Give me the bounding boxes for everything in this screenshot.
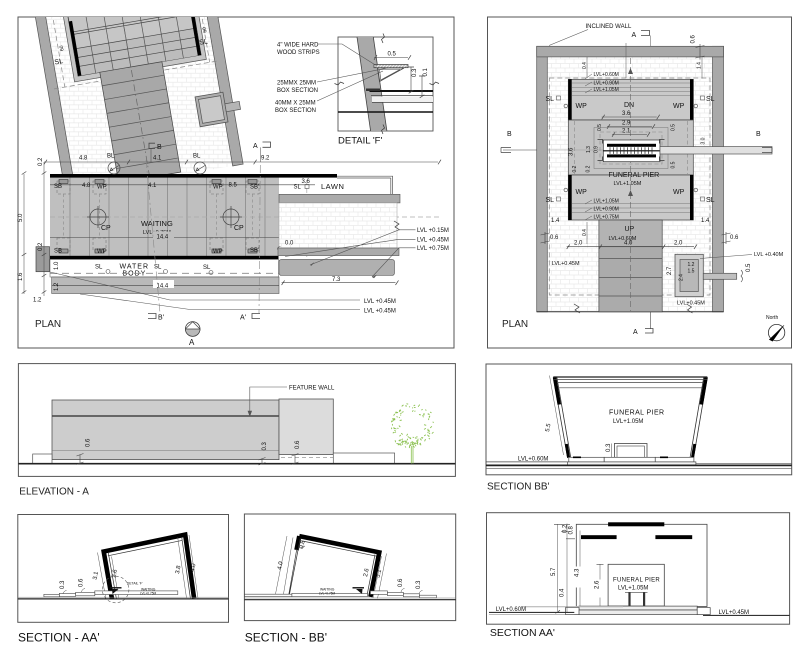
svg-text:LVL +0.75M: LVL +0.75M xyxy=(417,246,449,252)
svg-text:0.3: 0.3 xyxy=(262,441,268,450)
svg-text:LVL+0.75M: LVL+0.75M xyxy=(594,215,619,221)
svg-text:LVL+0.75M: LVL+0.75M xyxy=(140,591,156,595)
svg-text:SL: SL xyxy=(203,265,211,271)
svg-text:BL: BL xyxy=(107,154,115,160)
svg-text:LVL+0.60M: LVL+0.60M xyxy=(609,236,637,242)
svg-text:2.0: 2.0 xyxy=(674,241,683,247)
svg-text:WP: WP xyxy=(673,189,685,196)
svg-text:LVL+1.05M: LVL+1.05M xyxy=(594,87,619,93)
svg-text:0.2: 0.2 xyxy=(38,242,44,251)
svg-text:7.3: 7.3 xyxy=(332,277,341,283)
svg-text:DN: DN xyxy=(624,102,634,109)
svg-text:LVL+0.60M: LVL+0.60M xyxy=(496,607,526,613)
svg-text:0.5: 0.5 xyxy=(388,52,397,58)
svg-text:4.8: 4.8 xyxy=(79,156,88,162)
svg-text:0.2: 0.2 xyxy=(572,165,578,172)
svg-text:PLAN: PLAN xyxy=(35,319,61,330)
svg-text:8.5: 8.5 xyxy=(229,183,238,189)
svg-text:LVL +0.45M: LVL +0.45M xyxy=(417,238,449,244)
svg-text:SL: SL xyxy=(546,96,555,103)
svg-text:PLAN: PLAN xyxy=(502,319,528,330)
svg-text:SECTION - AA': SECTION - AA' xyxy=(18,631,100,645)
svg-text:3.6: 3.6 xyxy=(302,179,311,185)
svg-text:WP: WP xyxy=(97,249,107,255)
svg-text:0.5: 0.5 xyxy=(597,124,603,131)
svg-text:WATER: WATER xyxy=(120,264,150,271)
svg-text:FUNERAL PIER: FUNERAL PIER xyxy=(609,410,665,417)
svg-text:CP: CP xyxy=(101,225,111,232)
svg-text:0.3: 0.3 xyxy=(416,580,422,589)
svg-text:4.3: 4.3 xyxy=(575,568,581,577)
svg-text:LAWN: LAWN xyxy=(321,182,344,191)
svg-text:40MM X 25MM: 40MM X 25MM xyxy=(275,101,316,107)
svg-text:SECTION BB': SECTION BB' xyxy=(487,482,550,493)
svg-text:5.7: 5.7 xyxy=(551,567,557,576)
svg-text:SECTION AA': SECTION AA' xyxy=(490,627,555,639)
svg-text:1.4: 1.4 xyxy=(701,218,710,224)
svg-text:1.2: 1.2 xyxy=(688,262,695,268)
svg-text:3.6: 3.6 xyxy=(569,147,575,156)
svg-text:INCLINED WALL: INCLINED WALL xyxy=(586,24,632,30)
svg-text:1.0: 1.0 xyxy=(54,261,60,270)
svg-text:CP: CP xyxy=(234,225,244,232)
svg-text:0.3: 0.3 xyxy=(60,580,66,589)
svg-text:0.0: 0.0 xyxy=(285,241,294,247)
svg-text:1.2: 1.2 xyxy=(33,298,42,304)
svg-text:FUNERAL PIER: FUNERAL PIER xyxy=(613,578,660,584)
svg-text:A: A xyxy=(633,329,638,336)
svg-text:0.6: 0.6 xyxy=(295,440,301,449)
svg-text:WP: WP xyxy=(213,249,223,255)
svg-text:SL: SL xyxy=(154,265,162,271)
svg-text:SL: SL xyxy=(706,197,715,204)
svg-text:SL: SL xyxy=(54,58,64,66)
svg-text:LVL+1.05M: LVL+1.05M xyxy=(613,419,643,425)
svg-text:WP: WP xyxy=(673,103,685,110)
svg-text:SL: SL xyxy=(706,96,715,103)
svg-text:A: A xyxy=(632,32,637,39)
svg-text:SB: SB xyxy=(54,249,62,255)
svg-text:WAITING: WAITING xyxy=(141,219,173,228)
svg-text:2.4: 2.4 xyxy=(679,274,685,281)
svg-text:4.1: 4.1 xyxy=(148,183,157,189)
svg-text:LVL+1.05M: LVL+1.05M xyxy=(618,586,648,592)
svg-text:2.1: 2.1 xyxy=(622,129,631,135)
svg-text:DETAIL 'F': DETAIL 'F' xyxy=(127,582,143,586)
svg-text:SB': SB' xyxy=(250,185,259,191)
svg-text:0.1: 0.1 xyxy=(423,67,429,76)
svg-text:0.3: 0.3 xyxy=(412,68,418,77)
svg-text:B': B' xyxy=(158,315,164,322)
svg-text:2.9: 2.9 xyxy=(622,121,631,127)
svg-text:LVL +0.40M: LVL +0.40M xyxy=(754,252,784,258)
svg-text:1.2: 1.2 xyxy=(54,282,60,291)
svg-text:LVL+0.90M: LVL+0.90M xyxy=(594,80,619,86)
svg-text:0.2: 0.2 xyxy=(38,157,44,166)
svg-text:FUNERAL PIER: FUNERAL PIER xyxy=(609,172,660,179)
svg-text:LVL +0.45M: LVL +0.45M xyxy=(364,309,396,315)
svg-text:LVL+0.60M: LVL+0.60M xyxy=(518,456,548,462)
svg-text:WOOD STRIPS: WOOD STRIPS xyxy=(277,50,320,56)
svg-text:SECTION - BB': SECTION - BB' xyxy=(245,631,327,645)
svg-text:ELEVATION - A: ELEVATION - A xyxy=(19,487,89,498)
svg-text:0.3: 0.3 xyxy=(606,443,612,452)
svg-text:LVL+1.05M: LVL+1.05M xyxy=(614,181,642,187)
svg-text:LVL +0.45M: LVL +0.45M xyxy=(364,299,396,305)
svg-text:1.3: 1.3 xyxy=(586,146,592,153)
svg-text:25MMX 25MM: 25MMX 25MM xyxy=(277,81,316,87)
svg-text:9.2: 9.2 xyxy=(261,156,270,162)
svg-text:0.8: 0.8 xyxy=(569,525,575,534)
svg-text:SL: SL xyxy=(546,197,555,204)
svg-text:WP: WP xyxy=(576,103,588,110)
svg-text:3.6: 3.6 xyxy=(622,111,631,117)
svg-text:1.6: 1.6 xyxy=(18,272,24,281)
svg-text:0.4: 0.4 xyxy=(560,588,566,597)
svg-text:B: B xyxy=(507,131,512,138)
svg-text:SL: SL xyxy=(95,265,103,271)
svg-text:LVL+0.45M: LVL+0.45M xyxy=(719,610,749,616)
svg-text:2.6: 2.6 xyxy=(595,580,601,589)
svg-text:4" WIDE HARD: 4" WIDE HARD xyxy=(277,43,319,49)
svg-text:0.6: 0.6 xyxy=(86,438,92,447)
svg-text:WP: WP xyxy=(213,185,223,191)
svg-text:LVL+0.60M: LVL+0.60M xyxy=(594,72,619,78)
svg-text:A: A xyxy=(189,338,195,347)
svg-text:A: A xyxy=(253,143,258,150)
svg-text:0.6: 0.6 xyxy=(550,235,559,241)
svg-text:14.4: 14.4 xyxy=(157,234,169,240)
svg-text:0.5: 0.5 xyxy=(746,263,752,272)
svg-text:2.0: 2.0 xyxy=(574,241,583,247)
svg-text:SB': SB' xyxy=(250,248,259,254)
svg-text:UP: UP xyxy=(625,226,635,233)
svg-text:0.6: 0.6 xyxy=(79,578,85,587)
svg-text:North: North xyxy=(766,315,778,321)
svg-text:B: B xyxy=(157,144,162,151)
svg-text:BODY: BODY xyxy=(123,271,147,278)
svg-text:14.4: 14.4 xyxy=(157,283,169,289)
svg-text:0.5: 0.5 xyxy=(671,161,677,168)
svg-text:1.4: 1.4 xyxy=(697,62,703,69)
svg-text:4.8: 4.8 xyxy=(82,183,91,189)
svg-text:SL: SL xyxy=(199,38,209,46)
svg-text:4.1: 4.1 xyxy=(153,156,162,162)
svg-text:0.2: 0.2 xyxy=(586,165,592,172)
svg-text:SL: SL xyxy=(294,185,302,191)
svg-text:0.5: 0.5 xyxy=(671,124,677,131)
svg-text:LVL+1.05M: LVL+1.05M xyxy=(594,199,619,205)
svg-text:DETAIL 'F': DETAIL 'F' xyxy=(338,136,382,147)
svg-text:A': A' xyxy=(240,315,246,322)
svg-text:4.0: 4.0 xyxy=(624,241,633,247)
svg-text:2.7: 2.7 xyxy=(667,266,673,275)
svg-text:0.9: 0.9 xyxy=(594,146,600,153)
svg-text:SB: SB xyxy=(54,184,62,190)
svg-text:LVL+0.45M: LVL+0.45M xyxy=(552,261,580,267)
svg-text:3.0: 3.0 xyxy=(701,137,707,144)
svg-text:FEATURE WALL: FEATURE WALL xyxy=(289,386,335,392)
svg-text:1.4: 1.4 xyxy=(551,218,560,224)
svg-text:LVL +0.15M: LVL +0.15M xyxy=(417,228,449,234)
svg-text:5.0: 5.0 xyxy=(18,213,24,222)
svg-text:BL: BL xyxy=(193,154,201,160)
svg-text:0.6: 0.6 xyxy=(730,235,739,241)
svg-text:WP: WP xyxy=(576,189,588,196)
svg-text:BOX SECTION: BOX SECTION xyxy=(277,88,318,94)
svg-text:LVL+0.45M: LVL+0.45M xyxy=(677,301,705,307)
svg-text:LVL+0.90M: LVL+0.90M xyxy=(594,207,619,213)
svg-text:WP: WP xyxy=(97,185,107,191)
svg-text:0.6: 0.6 xyxy=(691,34,697,43)
svg-text:1.5: 1.5 xyxy=(688,269,695,275)
svg-text:LVL+0.75M: LVL+0.75M xyxy=(319,591,335,595)
svg-text:0.6: 0.6 xyxy=(398,578,404,587)
svg-text:BOX SECTION: BOX SECTION xyxy=(275,108,316,114)
svg-text:B: B xyxy=(756,131,761,138)
